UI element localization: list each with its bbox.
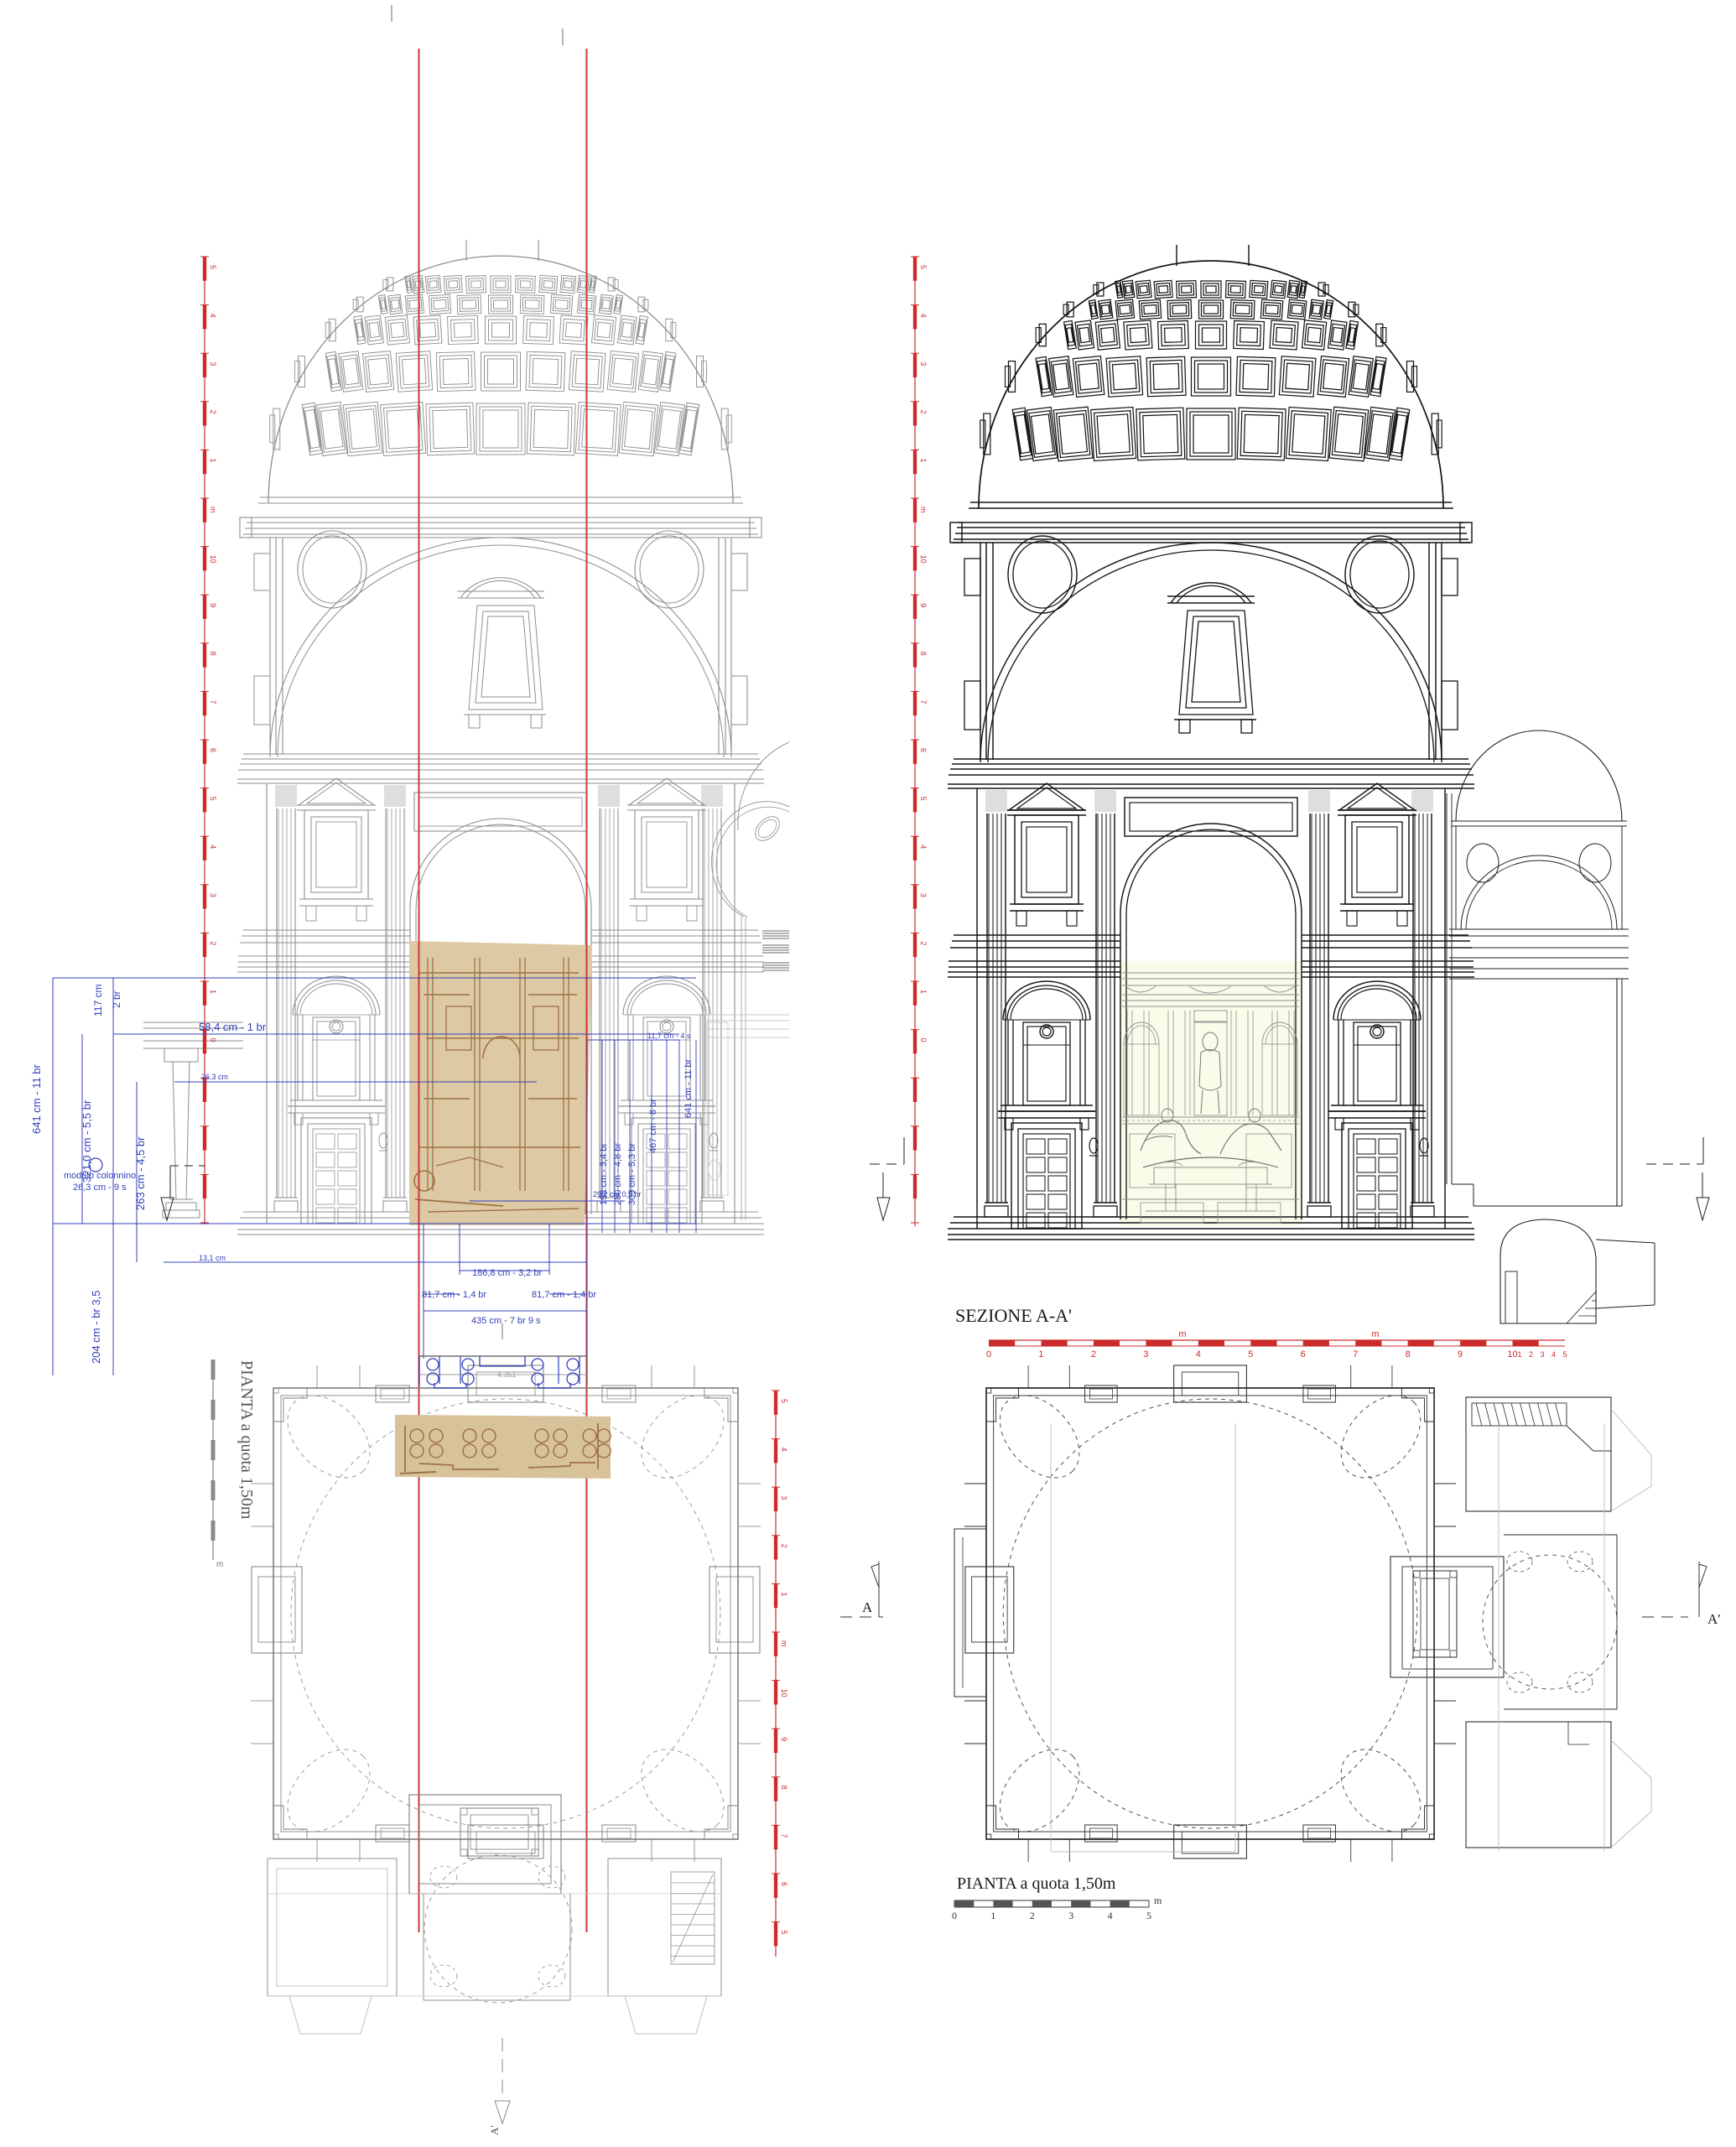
svg-text:PIANTA a quota 1,50m: PIANTA a quota 1,50m <box>237 1360 256 1520</box>
svg-text:3: 3 <box>919 361 928 366</box>
svg-text:9: 9 <box>780 1737 788 1741</box>
svg-text:6: 6 <box>780 1882 788 1886</box>
svg-text:204 cm - br 3,5: 204 cm - br 3,5 <box>90 1291 102 1364</box>
svg-text:81,7 cm - 1,4 br: 81,7 cm - 1,4 br <box>422 1290 486 1300</box>
svg-text:5: 5 <box>209 265 217 269</box>
svg-text:1: 1 <box>919 990 928 994</box>
svg-text:435 cm - 7 br 9 s: 435 cm - 7 br 9 s <box>471 1316 541 1326</box>
svg-text:4.351: 4.351 <box>497 1370 517 1379</box>
svg-text:8: 8 <box>919 652 928 656</box>
svg-text:m: m <box>209 507 217 513</box>
svg-text:3: 3 <box>919 893 928 897</box>
svg-text:PIANTA a quota 1,50m: PIANTA a quota 1,50m <box>957 1874 1116 1893</box>
svg-text:8: 8 <box>780 1786 788 1790</box>
svg-text:10: 10 <box>919 555 928 564</box>
svg-text:4: 4 <box>209 314 217 318</box>
svg-text:5: 5 <box>1562 1350 1567 1359</box>
svg-text:3: 3 <box>780 1495 788 1500</box>
svg-text:m: m <box>1154 1895 1162 1906</box>
svg-text:7: 7 <box>780 1833 788 1838</box>
svg-text:9: 9 <box>209 603 217 607</box>
svg-text:8: 8 <box>209 652 217 656</box>
svg-text:1: 1 <box>209 990 217 994</box>
svg-text:11,7 cm - 4 s: 11,7 cm - 4 s <box>647 1032 691 1040</box>
svg-text:2: 2 <box>209 941 217 945</box>
svg-text:2: 2 <box>1529 1350 1533 1359</box>
svg-text:7: 7 <box>209 699 217 704</box>
svg-text:198 cm - 3,4 br: 198 cm - 3,4 br <box>599 1143 609 1205</box>
svg-text:1: 1 <box>209 458 217 462</box>
svg-text:A': A' <box>1707 1611 1720 1627</box>
svg-text:3: 3 <box>209 893 217 897</box>
svg-text:3: 3 <box>209 361 217 366</box>
svg-text:m: m <box>1178 1329 1186 1339</box>
svg-text:1: 1 <box>919 458 928 462</box>
svg-text:3: 3 <box>1068 1910 1073 1921</box>
svg-text:5: 5 <box>919 797 928 801</box>
svg-text:5: 5 <box>780 1399 788 1403</box>
svg-text:263 cm - 4,5 br: 263 cm - 4,5 br <box>134 1136 147 1210</box>
svg-text:3: 3 <box>1540 1350 1544 1359</box>
svg-text:4: 4 <box>780 1448 788 1452</box>
svg-text:A: A <box>862 1599 873 1615</box>
svg-text:7: 7 <box>919 699 928 704</box>
svg-text:5: 5 <box>919 265 928 269</box>
svg-text:2: 2 <box>780 1544 788 1548</box>
svg-text:309 cm - 5,3 br: 309 cm - 5,3 br <box>627 1143 637 1205</box>
svg-text:m: m <box>780 1640 788 1647</box>
svg-text:4: 4 <box>1196 1349 1201 1359</box>
svg-text:1: 1 <box>1038 1349 1043 1359</box>
svg-text:SEZIONE A-A': SEZIONE A-A' <box>955 1305 1072 1326</box>
svg-text:641 cm - 11 br: 641 cm - 11 br <box>683 1059 694 1118</box>
svg-text:1: 1 <box>1517 1350 1521 1359</box>
svg-text:6: 6 <box>1301 1349 1306 1359</box>
svg-text:A': A' <box>488 2125 501 2135</box>
svg-text:58,4 cm - 1 br: 58,4 cm - 1 br <box>199 1021 267 1033</box>
svg-text:3: 3 <box>1143 1349 1148 1359</box>
svg-text:10: 10 <box>209 555 217 564</box>
svg-text:0: 0 <box>986 1349 991 1359</box>
svg-text:81,7 cm - 1,4 br: 81,7 cm - 1,4 br <box>532 1290 596 1300</box>
svg-text:13,1 cm: 13,1 cm <box>199 1254 226 1262</box>
svg-text:467 cm - 8 br: 467 cm - 8 br <box>648 1099 658 1153</box>
svg-text:m: m <box>1371 1329 1379 1339</box>
svg-text:641 cm - 11 br: 641 cm - 11 br <box>30 1063 43 1134</box>
svg-text:9: 9 <box>919 603 928 607</box>
svg-text:2: 2 <box>209 410 217 414</box>
svg-text:26,3 cm: 26,3 cm <box>201 1073 228 1081</box>
svg-text:2: 2 <box>1091 1349 1096 1359</box>
svg-text:6: 6 <box>919 748 928 752</box>
svg-text:modulo colonnino: modulo colonnino <box>64 1171 136 1181</box>
svg-text:4: 4 <box>919 845 928 849</box>
svg-text:4: 4 <box>1551 1350 1556 1359</box>
svg-text:2 br: 2 br <box>111 990 122 1008</box>
svg-text:0: 0 <box>919 1038 928 1042</box>
svg-text:10: 10 <box>780 1689 788 1697</box>
svg-text:280 cm - 4,8 br: 280 cm - 4,8 br <box>613 1143 623 1205</box>
svg-text:1: 1 <box>990 1910 995 1921</box>
svg-text:9: 9 <box>1458 1349 1463 1359</box>
svg-text:5: 5 <box>1248 1349 1253 1359</box>
svg-text:4: 4 <box>1108 1910 1113 1921</box>
svg-text:1: 1 <box>780 1592 788 1596</box>
svg-text:0: 0 <box>952 1910 957 1921</box>
svg-text:5: 5 <box>209 797 217 801</box>
svg-text:10: 10 <box>1507 1349 1517 1359</box>
svg-text:m: m <box>919 507 928 513</box>
svg-text:5: 5 <box>780 1931 788 1935</box>
svg-text:6: 6 <box>209 748 217 752</box>
svg-text:0: 0 <box>209 1038 217 1042</box>
svg-text:117 cm: 117 cm <box>92 985 104 1016</box>
svg-text:2: 2 <box>919 941 928 945</box>
svg-text:4: 4 <box>919 314 928 318</box>
svg-text:4: 4 <box>209 845 217 849</box>
svg-text:8: 8 <box>1406 1349 1411 1359</box>
svg-text:2: 2 <box>919 410 928 414</box>
svg-text:26,3 cm - 9 s: 26,3 cm - 9 s <box>73 1183 127 1193</box>
svg-text:m: m <box>216 1560 223 1569</box>
svg-text:186,8 cm - 3,2 br: 186,8 cm - 3,2 br <box>472 1268 542 1278</box>
svg-text:7: 7 <box>1353 1349 1358 1359</box>
svg-text:2: 2 <box>1030 1910 1035 1921</box>
svg-text:5: 5 <box>1146 1910 1151 1921</box>
